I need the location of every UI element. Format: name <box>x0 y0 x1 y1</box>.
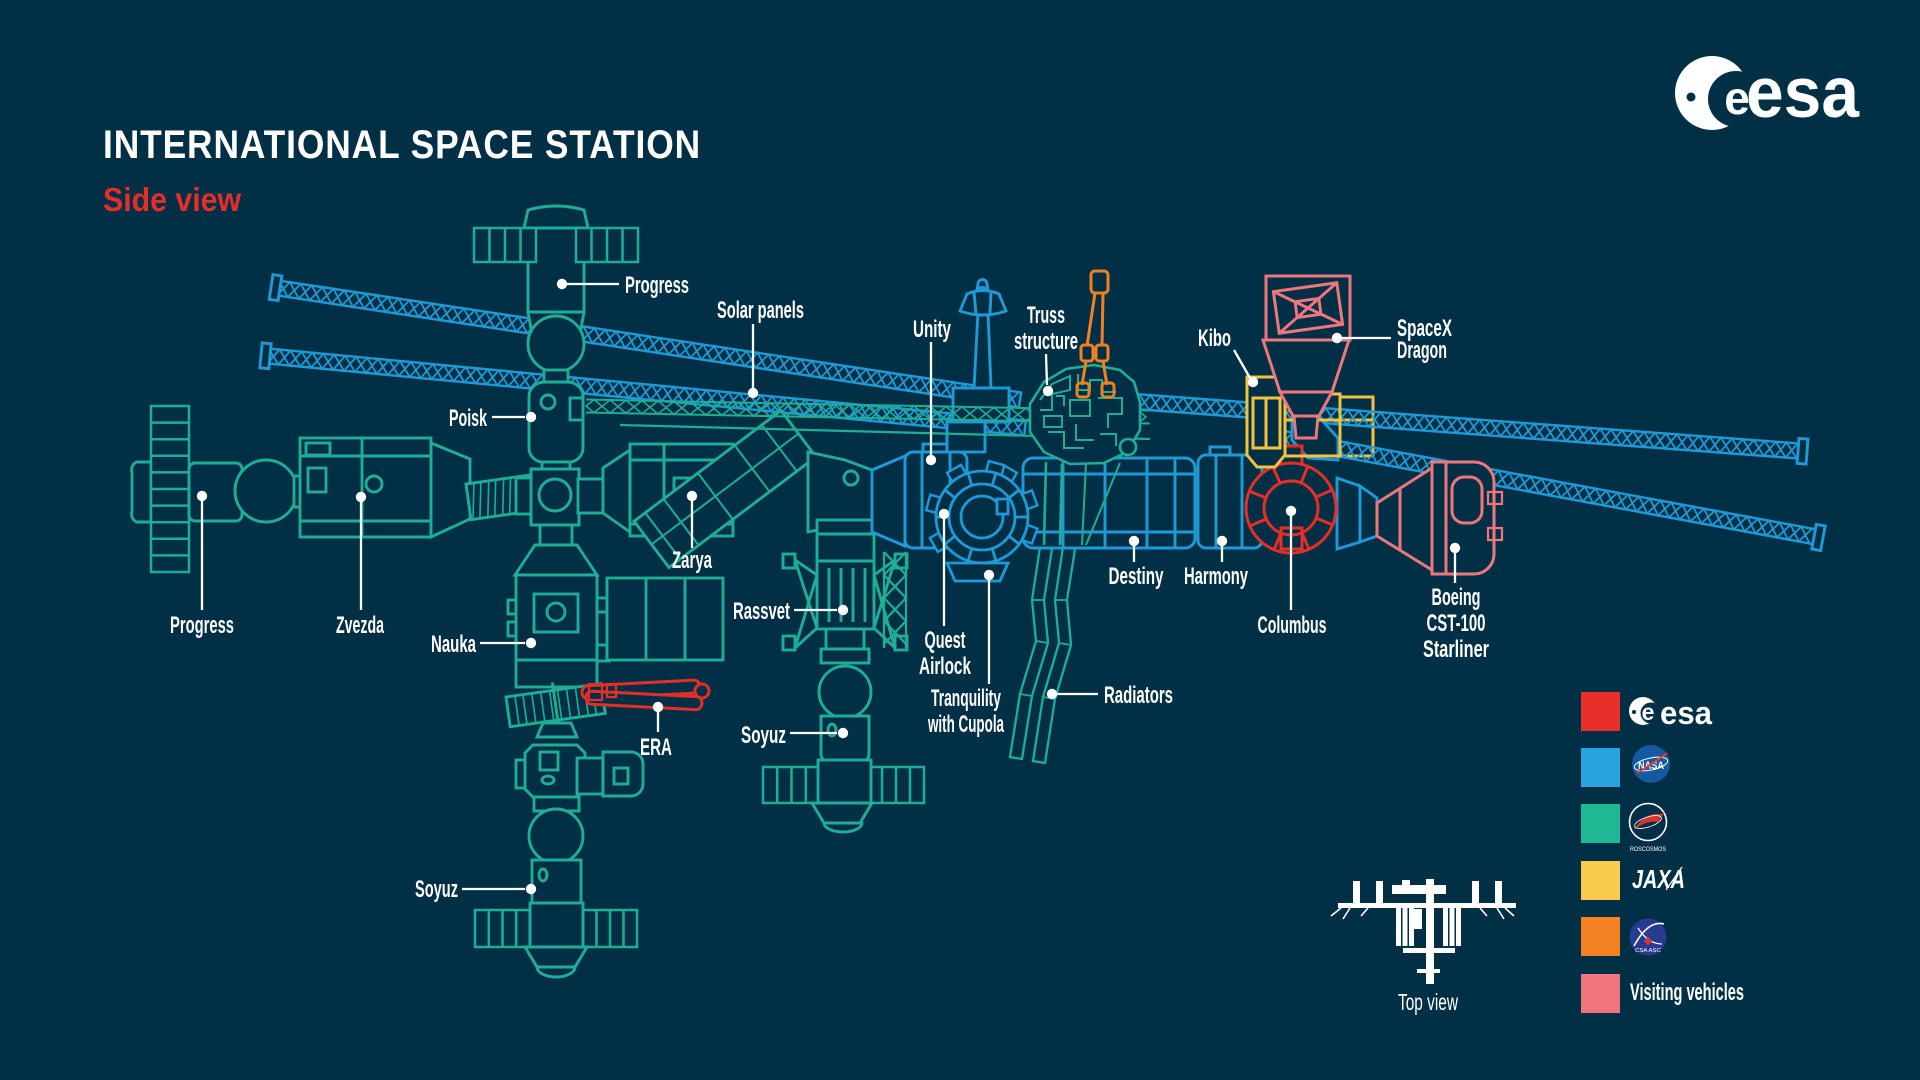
svg-text:e: e <box>1642 699 1655 725</box>
svg-text:Soyuz: Soyuz <box>741 722 786 749</box>
svg-text:Starliner: Starliner <box>1423 636 1489 663</box>
svg-text:ROSCOSMOS: ROSCOSMOS <box>1630 846 1667 853</box>
svg-text:ERA: ERA <box>640 734 672 761</box>
svg-text:Soyuz: Soyuz <box>415 876 458 903</box>
svg-text:JAXA: JAXA <box>1632 864 1685 894</box>
svg-text:with Cupola: with Cupola <box>927 711 1004 738</box>
svg-text:Zvezda: Zvezda <box>336 612 384 639</box>
svg-text:Side view: Side view <box>103 181 241 218</box>
svg-text:structure: structure <box>1014 328 1078 355</box>
svg-text:Zarya: Zarya <box>672 547 712 574</box>
svg-text:Poisk: Poisk <box>449 405 487 432</box>
svg-text:INTERNATIONAL SPACE STATION: INTERNATIONAL SPACE STATION <box>103 123 701 167</box>
svg-text:esa: esa <box>1660 695 1712 731</box>
svg-text:Solar panels: Solar panels <box>717 297 804 324</box>
svg-text:CST-100: CST-100 <box>1427 610 1486 637</box>
svg-text:Nauka: Nauka <box>431 631 476 658</box>
svg-text:Quest: Quest <box>925 627 966 654</box>
svg-text:Radiators: Radiators <box>1104 682 1173 709</box>
svg-text:Rassvet: Rassvet <box>733 598 790 625</box>
svg-text:Unity: Unity <box>913 316 951 343</box>
svg-text:Kibo: Kibo <box>1198 325 1231 352</box>
svg-text:Tranquility: Tranquility <box>931 685 1001 712</box>
svg-text:Columbus: Columbus <box>1258 612 1327 639</box>
svg-text:Dragon: Dragon <box>1397 337 1447 364</box>
svg-text:Progress: Progress <box>170 612 234 639</box>
svg-text:Destiny: Destiny <box>1109 563 1164 590</box>
svg-text:Top view: Top view <box>1398 989 1458 1015</box>
svg-text:Airlock: Airlock <box>919 653 971 680</box>
svg-text:CSA ASC: CSA ASC <box>1635 948 1661 954</box>
svg-text:Progress: Progress <box>625 272 689 299</box>
svg-text:Harmony: Harmony <box>1184 563 1248 590</box>
svg-text:Truss: Truss <box>1027 302 1065 329</box>
svg-text:Boeing: Boeing <box>1432 584 1481 611</box>
svg-text:Visiting vehicles: Visiting vehicles <box>1630 979 1744 1006</box>
svg-text:esa: esa <box>1746 54 1859 133</box>
